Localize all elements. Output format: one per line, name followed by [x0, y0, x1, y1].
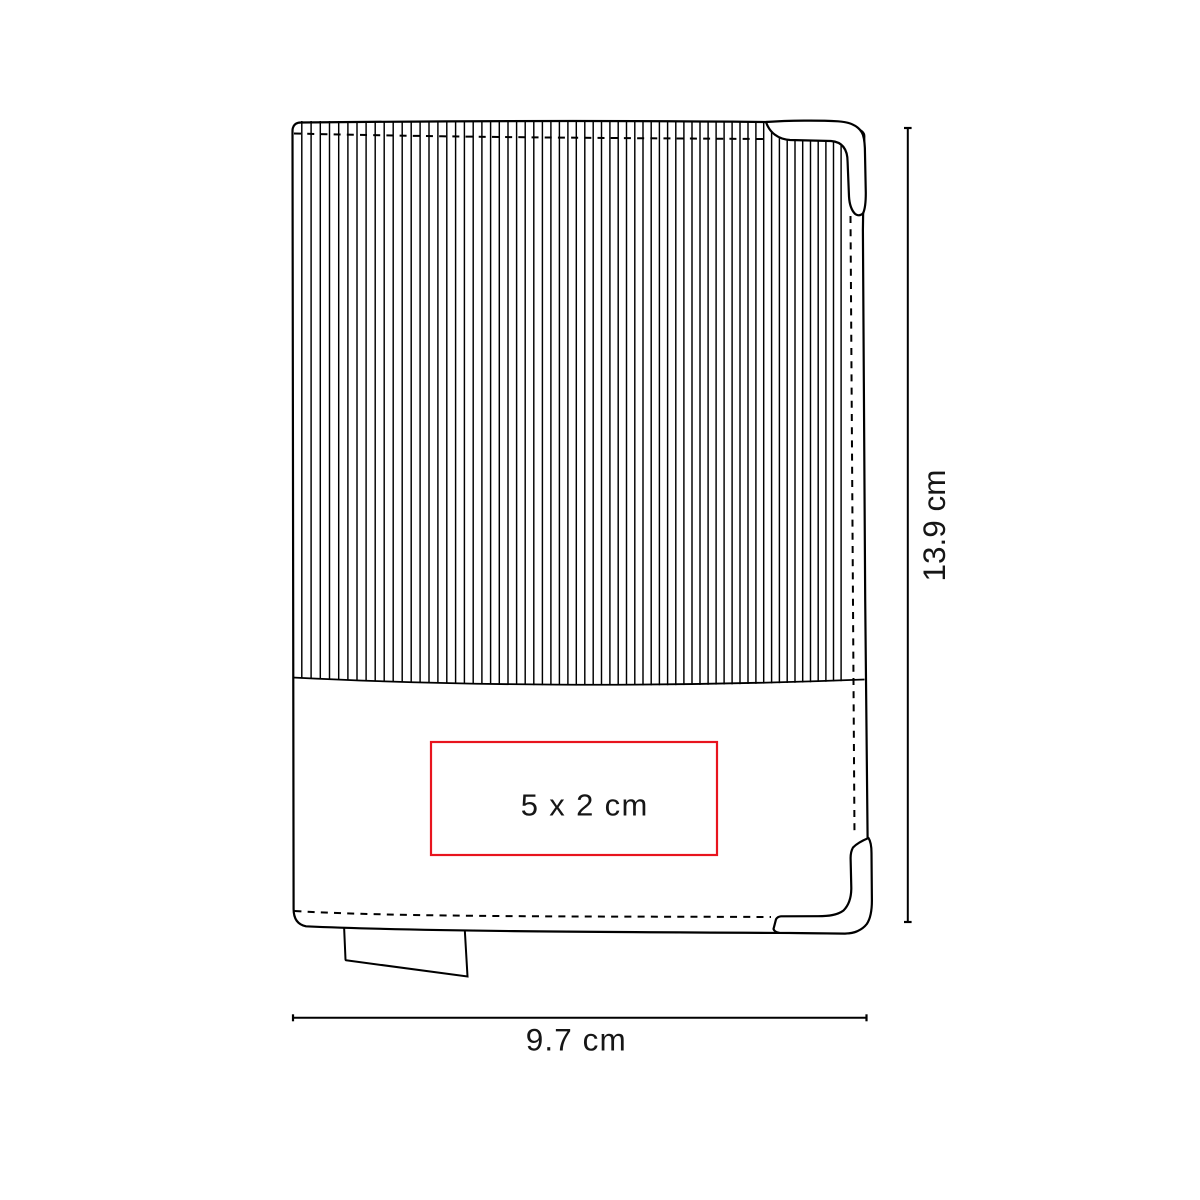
svg-text:13.9 cm: 13.9 cm	[916, 469, 952, 581]
svg-text:9.7 cm: 9.7 cm	[526, 1022, 627, 1058]
svg-text:5 x 2 cm: 5 x 2 cm	[521, 788, 649, 823]
